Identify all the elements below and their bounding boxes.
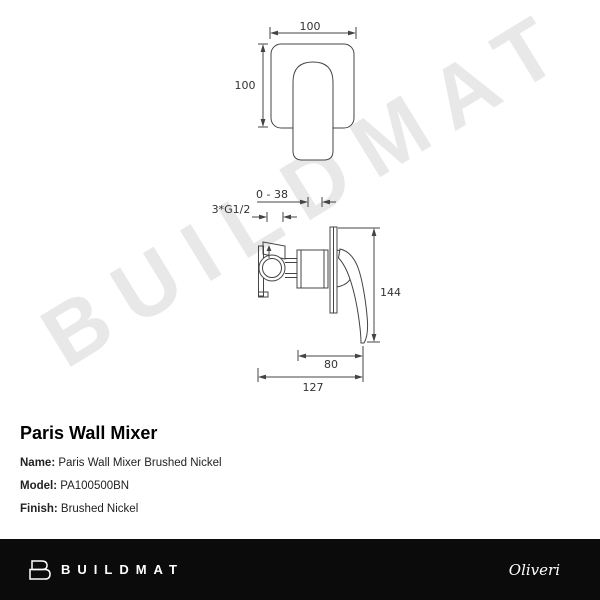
depth-range-label: 0 - 38	[256, 188, 288, 201]
front-handle	[293, 62, 333, 160]
buildmat-logo-icon	[28, 559, 52, 581]
name-value: Paris Wall Mixer Brushed Nickel	[58, 457, 221, 469]
front-view	[258, 27, 356, 160]
product-model-row: Model: PA100500BN	[20, 480, 222, 492]
handle-lever	[339, 249, 368, 343]
model-value: PA100500BN	[60, 480, 129, 492]
total-depth-label: 127	[303, 381, 324, 394]
product-name-row: Name: Paris Wall Mixer Brushed Nickel	[20, 457, 222, 469]
handle-depth-label: 80	[324, 358, 338, 371]
product-spec-page: BUILDMAT 100 100	[0, 0, 600, 600]
model-label: Model:	[20, 480, 57, 492]
thread-label: 3*G1/2	[212, 203, 251, 216]
finish-value: Brushed Nickel	[61, 503, 138, 515]
inlet-pipes	[285, 259, 297, 278]
product-finish-row: Finish: Brushed Nickel	[20, 503, 222, 515]
name-label: Name:	[20, 457, 55, 469]
front-height-label: 100	[235, 79, 256, 92]
finish-label: Finish:	[20, 503, 58, 515]
technical-drawing: 100 100	[0, 0, 600, 420]
side-view	[252, 197, 380, 382]
front-width-label: 100	[300, 20, 321, 33]
footer-bar: BUILDMAT Oliveri	[0, 539, 600, 600]
product-info: Paris Wall Mixer Name: Paris Wall Mixer …	[20, 423, 222, 526]
product-title: Paris Wall Mixer	[20, 423, 222, 444]
side-height-label: 144	[380, 286, 401, 299]
total-depth-dimension	[258, 346, 363, 382]
thread-dimension	[252, 212, 297, 222]
oliveri-logo: Oliveri	[509, 561, 560, 579]
valve-body	[297, 250, 328, 288]
front-height-dimension	[258, 44, 268, 127]
buildmat-brand: BUILDMAT	[28, 559, 184, 581]
buildmat-logo-text: BUILDMAT	[61, 562, 184, 577]
